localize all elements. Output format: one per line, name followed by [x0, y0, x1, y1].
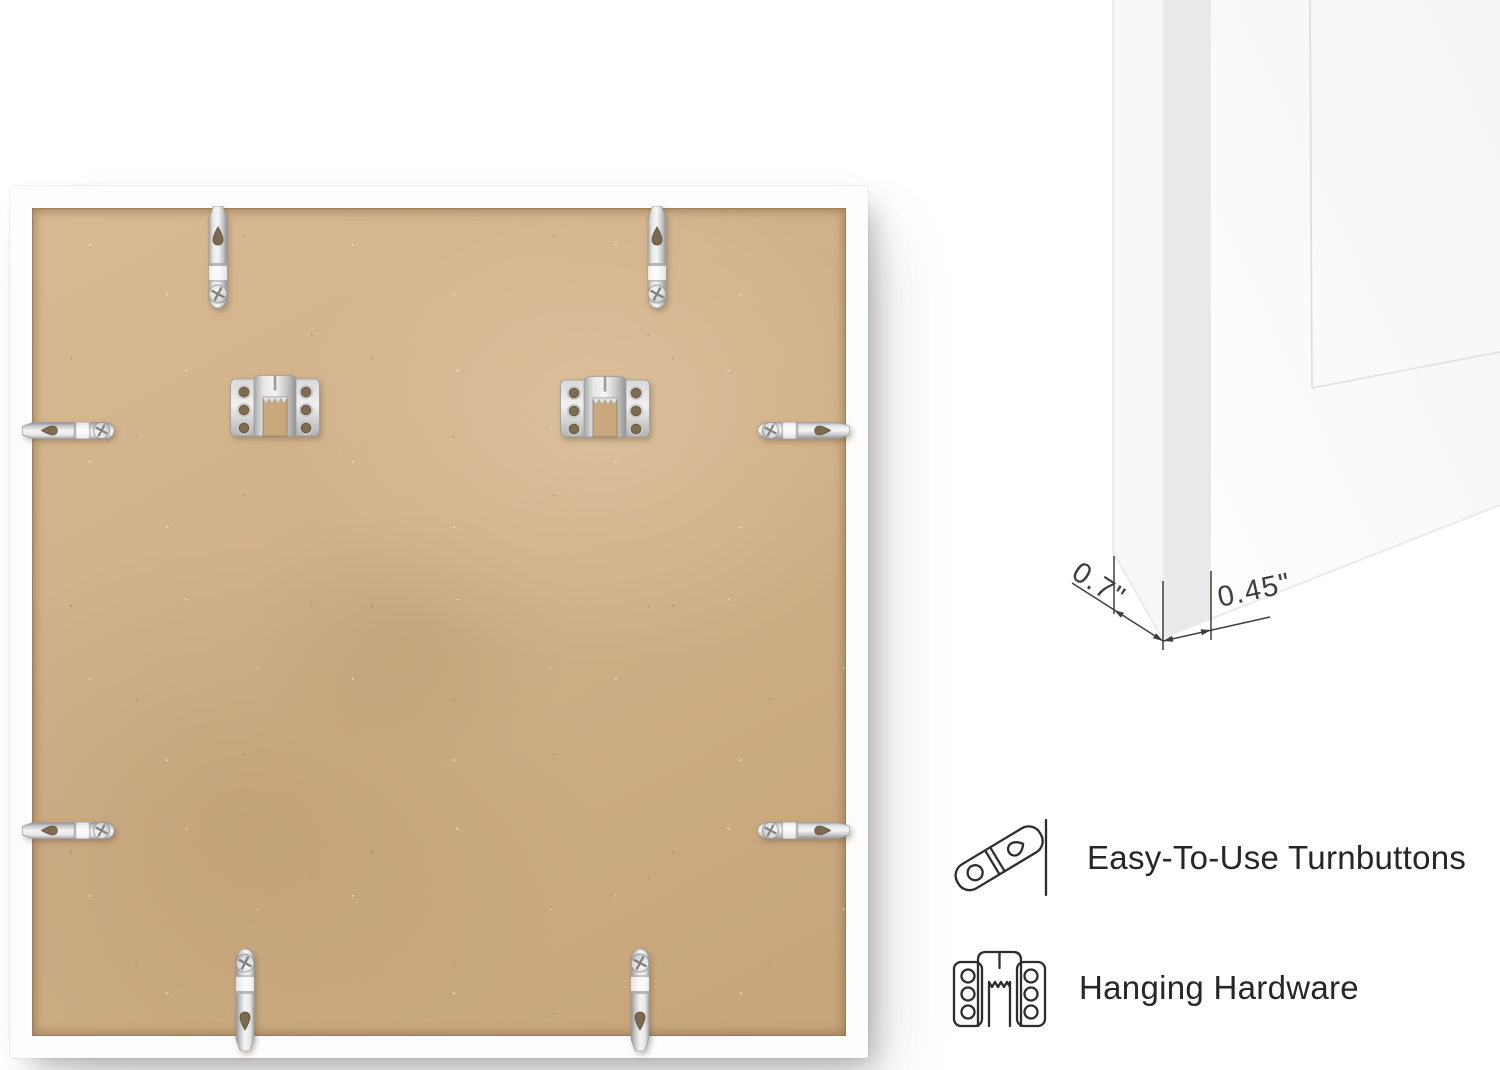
feature-turnbuttons: Easy-To-Use Turnbuttons [945, 812, 1466, 904]
frame-corner-photo [1113, 0, 1500, 638]
sawtooth-hanger-icon [952, 948, 1047, 1028]
frame-corner-closeup: 0.7" 0.45" [1030, 0, 1500, 700]
turnbutton-left-top [22, 417, 118, 444]
turnbutton-bottom-left [230, 945, 260, 1051]
turnbutton-right-top [754, 417, 850, 444]
turnbutton-top-right [642, 206, 672, 312]
feature-hanging-hardware: Hanging Hardware [952, 948, 1359, 1028]
turnbutton-top-left [203, 206, 233, 312]
sawtooth-hanger-right [560, 374, 650, 438]
turnbutton-bottom-right [625, 945, 655, 1051]
feature-label-turnbuttons: Easy-To-Use Turnbuttons [1087, 839, 1466, 877]
sawtooth-hanger-left [230, 373, 320, 437]
turnbutton-icon [945, 812, 1055, 904]
turnbutton-right-bottom [754, 817, 850, 844]
feature-label-hanging-hardware: Hanging Hardware [1079, 969, 1359, 1007]
product-image: 0.7" 0.45" Easy-To-Use Turnbuttons [0, 0, 1500, 1070]
turnbutton-left-bottom [22, 817, 118, 844]
frame-back-photo [10, 186, 868, 1058]
mdf-backing-board [32, 208, 846, 1036]
